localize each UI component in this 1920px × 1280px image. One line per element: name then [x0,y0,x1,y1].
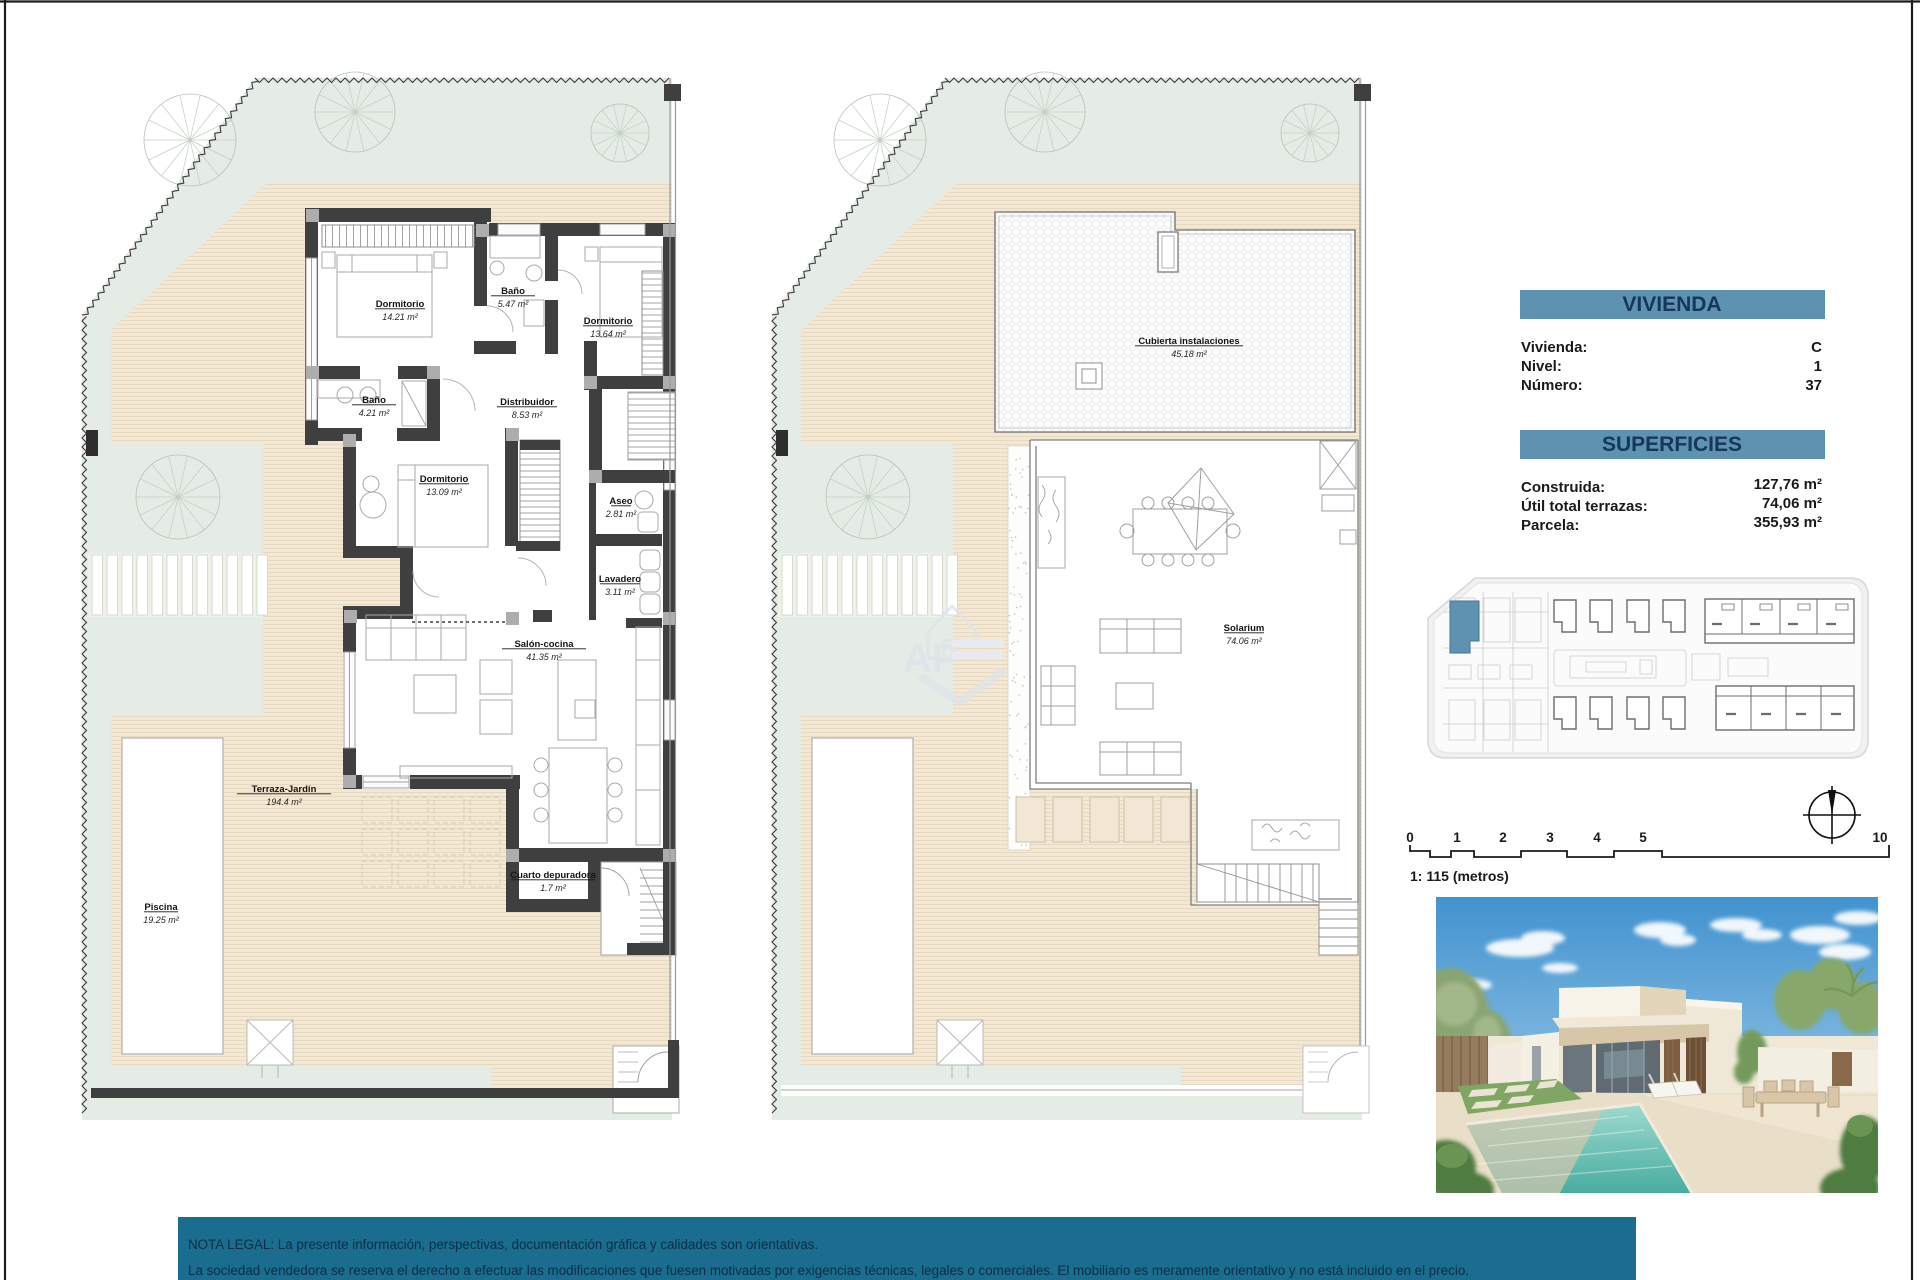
svg-text:Nivel:: Nivel: [1521,358,1562,375]
svg-text:VIVIENDA: VIVIENDA [1622,293,1721,316]
svg-text:La sociedad vendedora se reser: La sociedad vendedora se reserva el dere… [188,1263,1469,1278]
svg-text:1: 1 [1453,830,1461,845]
svg-text:74.06 m²: 74.06 m² [1226,636,1263,646]
svg-text:194.4 m²: 194.4 m² [266,797,303,807]
svg-text:74,06 m²: 74,06 m² [1762,495,1822,512]
svg-text:14.21 m²: 14.21 m² [382,312,419,322]
svg-text:127,76 m²: 127,76 m² [1754,476,1822,493]
svg-text:45.18 m²: 45.18 m² [1171,349,1208,359]
svg-text:SUPERFICIES: SUPERFICIES [1602,433,1742,456]
svg-text:41.35 m²: 41.35 m² [526,652,563,662]
svg-text:1: 1 [1814,358,1822,375]
svg-text:8.53 m²: 8.53 m² [512,410,544,420]
svg-text:2.81 m²: 2.81 m² [605,509,638,519]
svg-text:5.47 m²: 5.47 m² [498,299,530,309]
svg-text:Vivienda:: Vivienda: [1521,339,1587,356]
svg-text:Construida:: Construida: [1521,479,1605,496]
svg-text:2: 2 [1499,830,1507,845]
svg-text:5: 5 [1639,830,1647,845]
svg-text:13.09 m²: 13.09 m² [426,487,463,497]
svg-text:Número:: Número: [1521,377,1583,394]
svg-text:Parcela:: Parcela: [1521,517,1579,534]
svg-text:4: 4 [1593,830,1601,845]
svg-text:NOTA LEGAL: La presente inform: NOTA LEGAL: La presente información, per… [188,1237,818,1252]
svg-text:4.21 m²: 4.21 m² [359,408,391,418]
svg-text:355,93 m²: 355,93 m² [1754,514,1822,531]
svg-text:1.7 m²: 1.7 m² [540,883,567,893]
svg-text:3.11 m²: 3.11 m² [605,587,636,597]
svg-text:3: 3 [1546,830,1554,845]
svg-text:1: 115 (metros): 1: 115 (metros) [1410,868,1509,884]
svg-text:37: 37 [1805,377,1822,394]
svg-text:Útil total terrazas:: Útil total terrazas: [1521,497,1648,515]
svg-text:19.25 m²: 19.25 m² [143,915,180,925]
svg-text:C: C [1811,339,1822,356]
svg-text:10: 10 [1872,830,1887,845]
svg-text:AP: AP [903,637,959,681]
svg-text:13.64 m²: 13.64 m² [590,329,627,339]
svg-text:0: 0 [1406,830,1414,845]
